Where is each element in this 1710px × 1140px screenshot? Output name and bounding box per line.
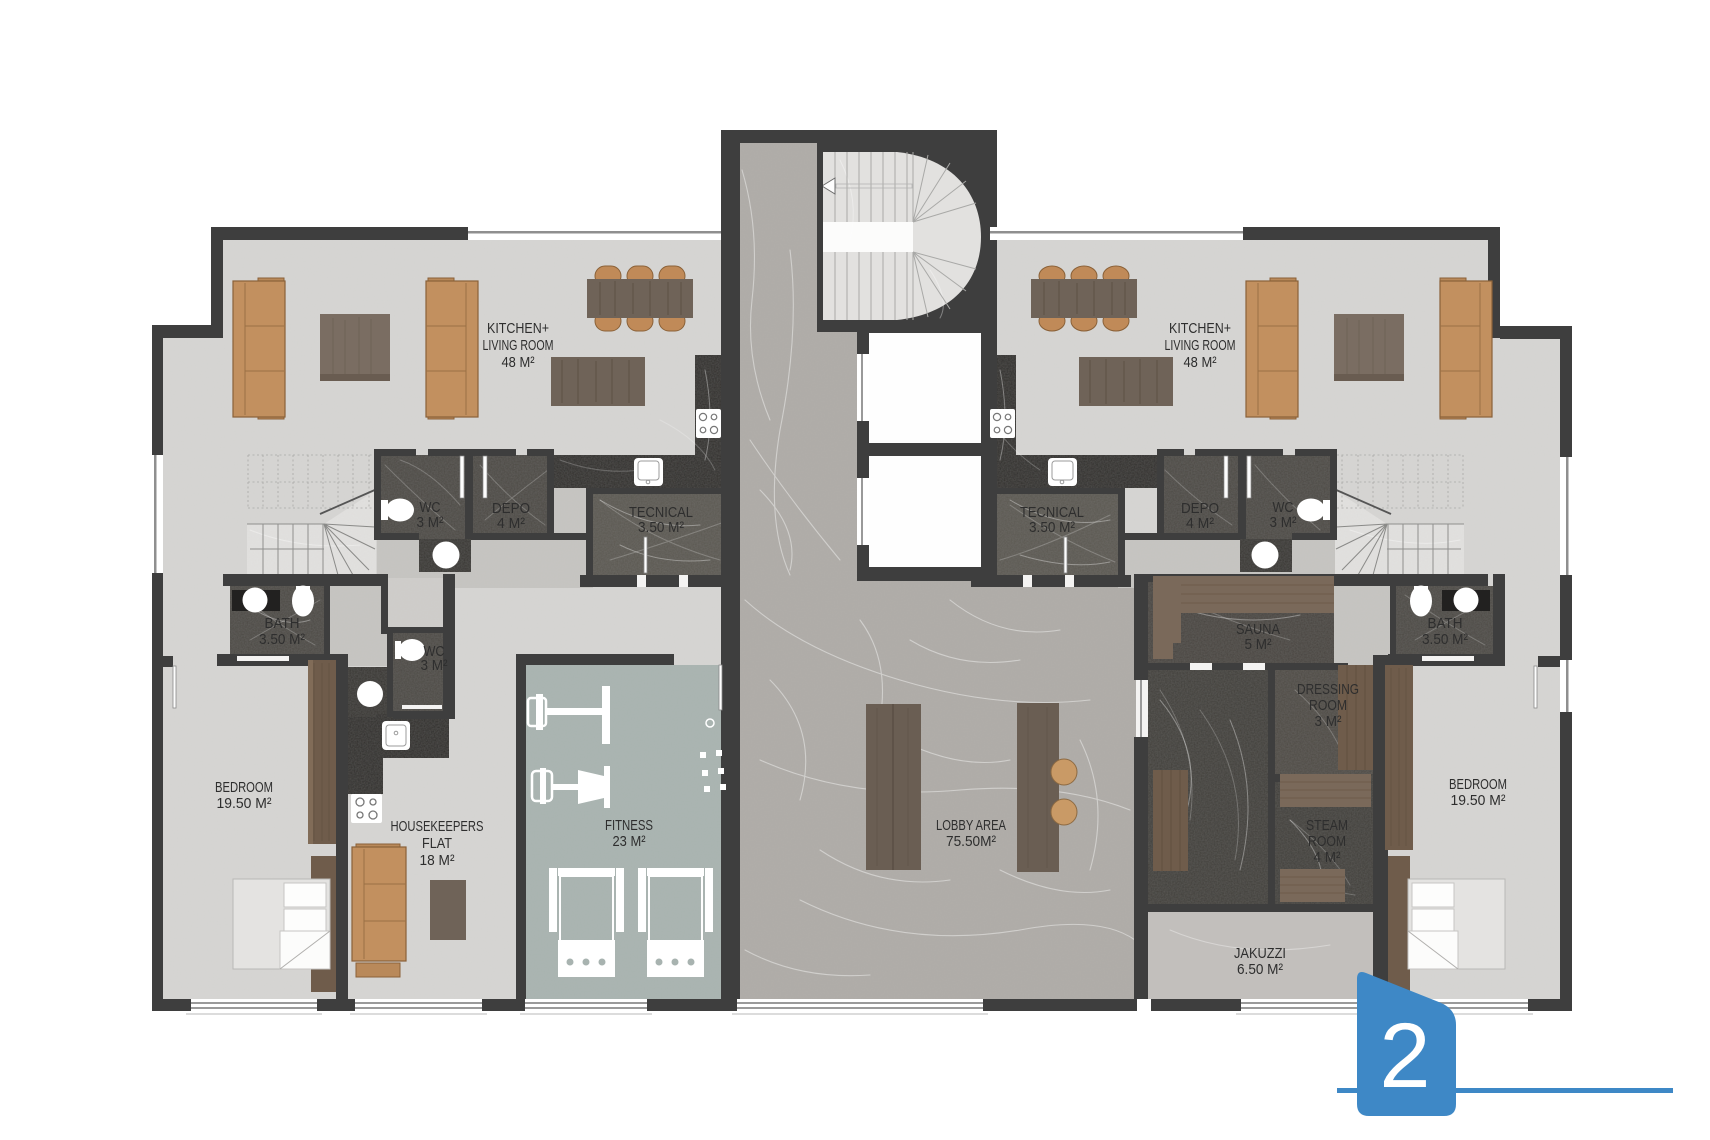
svg-text:4 M²: 4 M² xyxy=(497,515,525,532)
svg-text:STEAM: STEAM xyxy=(1306,817,1348,834)
svg-text:ROOM: ROOM xyxy=(1308,833,1346,850)
svg-text:4 M²: 4 M² xyxy=(1314,849,1341,866)
svg-text:LIVING ROOM: LIVING ROOM xyxy=(483,337,554,354)
svg-text:FITNESS: FITNESS xyxy=(605,817,653,834)
svg-text:18 M²: 18 M² xyxy=(420,852,455,869)
svg-text:BEDROOM: BEDROOM xyxy=(215,779,273,796)
svg-text:KITCHEN+: KITCHEN+ xyxy=(487,320,549,337)
svg-text:KITCHEN+: KITCHEN+ xyxy=(1169,320,1231,337)
svg-text:2: 2 xyxy=(1379,1005,1430,1107)
svg-text:BEDROOM: BEDROOM xyxy=(1449,776,1507,793)
svg-text:3 M²: 3 M² xyxy=(421,657,448,674)
svg-text:3 M²: 3 M² xyxy=(1270,514,1297,531)
svg-text:75.50M²: 75.50M² xyxy=(946,833,996,850)
svg-text:3 M²: 3 M² xyxy=(1315,713,1342,730)
svg-text:3.50 M²: 3.50 M² xyxy=(259,631,305,648)
svg-text:6.50 M²: 6.50 M² xyxy=(1237,961,1283,978)
svg-text:23 M²: 23 M² xyxy=(613,833,646,850)
svg-text:BATH: BATH xyxy=(1428,615,1463,632)
svg-text:4 M²: 4 M² xyxy=(1186,515,1214,532)
svg-text:3.50 M²: 3.50 M² xyxy=(638,519,684,536)
svg-text:DRESSING: DRESSING xyxy=(1297,681,1359,698)
svg-text:48 M²: 48 M² xyxy=(1184,354,1217,371)
svg-text:3.50 M²: 3.50 M² xyxy=(1029,519,1075,536)
svg-text:3 M²: 3 M² xyxy=(417,514,444,531)
svg-text:48 M²: 48 M² xyxy=(502,354,535,371)
svg-text:19.50 M²: 19.50 M² xyxy=(217,795,272,812)
svg-text:JAKUZZI: JAKUZZI xyxy=(1234,945,1286,962)
svg-text:LIVING ROOM: LIVING ROOM xyxy=(1165,337,1236,354)
svg-text:ROOM: ROOM xyxy=(1309,697,1347,714)
svg-text:FLAT: FLAT xyxy=(422,835,452,852)
svg-text:HOUSEKEEPERS: HOUSEKEEPERS xyxy=(391,818,484,835)
svg-text:5 M²: 5 M² xyxy=(1245,636,1272,653)
svg-text:3.50 M²: 3.50 M² xyxy=(1422,631,1468,648)
svg-text:BATH: BATH xyxy=(265,615,300,632)
svg-text:19.50 M²: 19.50 M² xyxy=(1451,792,1506,809)
svg-text:LOBBY AREA: LOBBY AREA xyxy=(936,817,1006,834)
